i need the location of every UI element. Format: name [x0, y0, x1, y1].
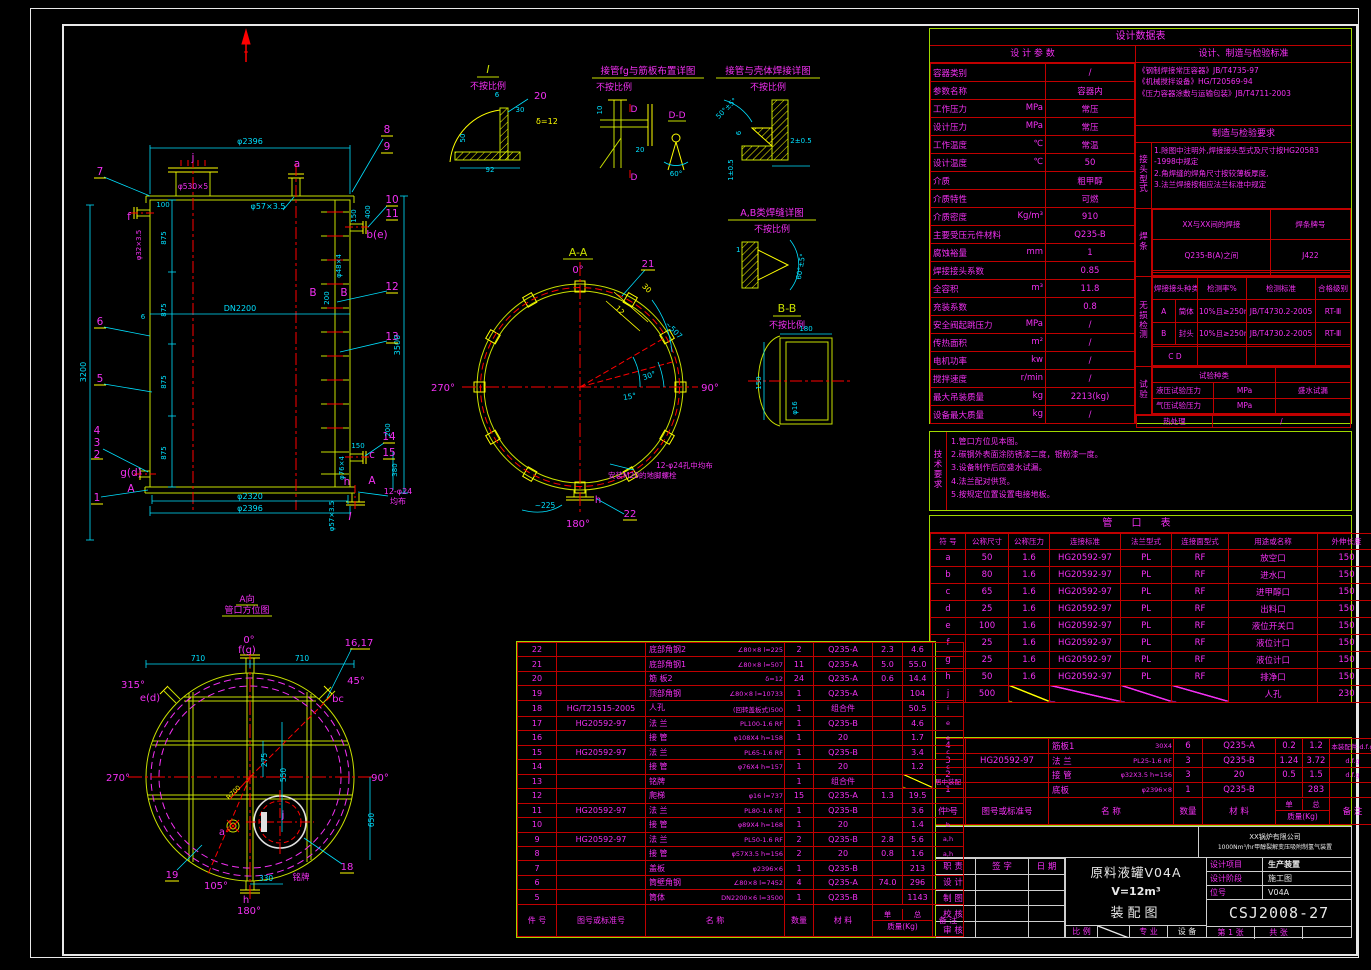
bom-unit-mass	[1276, 783, 1303, 798]
svg-text:4: 4	[94, 425, 101, 437]
svg-text:φ530×5: φ530×5	[178, 182, 209, 191]
bom-qty: 1	[785, 890, 814, 905]
bom-unit-mass	[873, 731, 903, 745]
nozzle-row: a501.6HG20592-97PLRF放空口150	[931, 549, 1371, 566]
mass-total-label: 总	[1303, 799, 1329, 810]
bom-item-no: 16	[518, 731, 557, 745]
svg-text:150: 150	[755, 376, 763, 389]
part-name: 接 管	[1052, 769, 1072, 781]
part-name: 接 管	[649, 761, 668, 772]
svg-text:22: 22	[624, 509, 637, 520]
part-name: 法 兰	[649, 805, 668, 816]
svg-text:7: 7	[97, 166, 104, 178]
scale-value	[1098, 925, 1130, 938]
param-name: 设计温度	[933, 157, 967, 169]
weld-pair: Q235-B(A)之间	[1153, 240, 1271, 270]
date-cell[interactable]	[1029, 906, 1065, 922]
param-label: 介质特性	[931, 190, 1046, 208]
part-name: 筒体	[649, 892, 665, 903]
param-label: 设计温度℃	[931, 154, 1046, 172]
bom-unit-mass: 0.5	[1276, 768, 1303, 783]
bom-item-no: 6	[518, 875, 557, 889]
part-spec: φ108X4 h=158	[734, 732, 783, 742]
param-value: 常压	[1046, 118, 1135, 136]
sign-cell[interactable]	[976, 874, 1029, 890]
part-spec: ∠80×8 l≈225	[738, 644, 783, 654]
test-type-header: 试验种类	[1153, 368, 1276, 383]
bom-name: 人孔(回转盖板式)500	[646, 700, 785, 716]
part-spec: PL25-1.6 RF	[1133, 755, 1172, 765]
mass-kg-label: 质量(Kg)	[1276, 811, 1329, 822]
nozzle-cell: 液位计口	[1229, 651, 1318, 668]
bom-std-no: HG20592-97	[557, 803, 646, 817]
param-unit: m³	[1031, 283, 1043, 295]
svg-text:h: h	[595, 495, 601, 506]
mass-unit-label: 单	[1276, 799, 1303, 810]
bom-material: 20	[814, 846, 873, 860]
bom-remark	[933, 686, 964, 700]
svg-text:12: 12	[385, 281, 398, 293]
bom-total-mass: 4.6	[903, 643, 933, 657]
nozzle-cell: 1.6	[1009, 549, 1050, 566]
nozzle-cell: RF	[1172, 583, 1229, 600]
scale-label: 比 例	[1066, 925, 1098, 938]
nozzle-cell: 150	[1318, 549, 1371, 566]
nozzle-cell: 50	[966, 668, 1009, 685]
param-label: 传热面积m²	[931, 334, 1046, 352]
sign-cell[interactable]	[976, 906, 1029, 922]
svg-text:90°: 90°	[701, 383, 719, 394]
nozzle-cell: c	[931, 583, 966, 600]
svg-text:180°: 180°	[237, 906, 261, 917]
svg-text:1±0.5: 1±0.5	[727, 159, 735, 180]
param-row: 焊接接头系数0.85	[931, 262, 1135, 280]
bom-name: 底板φ2396×8	[1049, 783, 1174, 798]
svg-text:100: 100	[156, 201, 169, 209]
bom-total-mass: 4.6	[903, 716, 933, 730]
bom-total-mass: 1.6	[903, 846, 933, 860]
nozzle-row: d251.6HG20592-97PLRF出料口150	[931, 600, 1371, 617]
test-table: 试验种类 液压试验压力 MPa 盛水试漏 气压试验压力 MPa	[1152, 367, 1351, 414]
bom-std-no	[966, 739, 1049, 754]
company-cell: XX锅炉有限公司 1000Nm³/hr甲醇裂解变压吸附制氢气装置	[1199, 827, 1351, 857]
param-label: 工作压力MPa	[931, 100, 1046, 118]
sign-header: 签 字	[976, 859, 1029, 875]
svg-text:875: 875	[160, 303, 168, 316]
nozzle-cell: 1.6	[1009, 600, 1050, 617]
param-name: 介质密度	[933, 211, 967, 223]
project-value: 生产装置	[1263, 858, 1351, 871]
bom-name: 铭牌	[646, 774, 785, 788]
svg-text:20: 20	[534, 91, 547, 102]
view-a-dims	[146, 648, 370, 884]
bom-total-mass: 19.5	[903, 789, 933, 803]
bom-material: Q235-A	[814, 657, 873, 671]
bom-unit-mass	[873, 745, 903, 759]
bom-unit-mass: 2.8	[873, 832, 903, 846]
bom-remark	[933, 875, 964, 889]
detail-i: I 不按比例 20 δ=12 6 30 92 50	[450, 63, 558, 174]
part-name: 筒壁角钢	[649, 877, 681, 888]
nozzle-header: 符 号	[931, 534, 966, 550]
ndt-head-kind: 焊接接头种类	[1153, 278, 1198, 300]
bom-total-mass: 55.0	[903, 657, 933, 671]
part-spec: PL65-1.6 RF	[744, 747, 783, 757]
drawing-sheet: 7 8 9 10 11 12 13 14 15 6 5 4 3 2 1 j a …	[0, 0, 1371, 970]
equipment-volume: V=12m³	[1111, 885, 1160, 898]
bom-material: Q235-B	[814, 716, 873, 730]
param-unit: kg	[1033, 409, 1043, 421]
svg-text:1: 1	[736, 246, 740, 254]
bom-material: Q235-B	[814, 832, 873, 846]
ndt-grade: RT-Ⅲ	[1316, 322, 1351, 344]
param-value: /	[1046, 352, 1135, 370]
bom-row: 14接 管φ76X4 h=1571201.2c	[518, 760, 964, 774]
part-name: 接 管	[649, 732, 668, 743]
project-label: 设计项目	[1207, 858, 1263, 871]
bom-row: 10接 管φ89X4 h=1681201.4b	[518, 818, 964, 832]
svg-text:2±0.5: 2±0.5	[790, 137, 811, 145]
nozzle-row: c651.6HG20592-97PLRF进甲醇口150	[931, 583, 1371, 600]
svg-text:200: 200	[323, 291, 331, 304]
svg-text:安装M20的地脚螺栓: 安装M20的地脚螺栓	[608, 470, 677, 480]
date-header: 日 期	[1029, 859, 1065, 875]
bom-name: 筋 板2δ=12	[646, 671, 785, 685]
bom-row: 1底板φ2396×81Q235-B283	[931, 783, 1371, 798]
param-row: 介质特性可燃	[931, 190, 1135, 208]
param-row: 设备最大质量kg/	[931, 406, 1135, 424]
param-value: 50	[1046, 154, 1135, 172]
date-cell[interactable]	[1029, 890, 1065, 906]
param-label: 腐蚀裕量mm	[931, 244, 1046, 262]
front-view-dimension-lines	[86, 139, 408, 540]
param-label: 工作温度℃	[931, 136, 1046, 154]
nozzle-cell: RF	[1172, 651, 1229, 668]
bom-header: 件 号	[518, 905, 557, 937]
bom-qty: 4	[785, 875, 814, 889]
nozzle-cell: PL	[1121, 634, 1172, 651]
bom-std-no	[557, 686, 646, 700]
nozzle-cell: 25	[966, 600, 1009, 617]
param-value: /	[1046, 334, 1135, 352]
major-label: 专 业	[1130, 925, 1168, 938]
bom-header-row: 件 号图号或标准号名 称数量材 料单总质量(Kg)备 注	[931, 797, 1371, 824]
bom-std-no: HG/T21515-2005	[557, 700, 646, 716]
svg-text:275: 275	[260, 753, 269, 768]
svg-text:铭牌: 铭牌	[292, 872, 310, 883]
bom-material: 20	[1203, 768, 1276, 783]
svg-text:b(e): b(e)	[366, 229, 387, 241]
bom-qty: 1	[785, 731, 814, 745]
bom-item-no: 22	[518, 643, 557, 657]
ndt-shell: 筒体	[1175, 300, 1198, 322]
svg-text:A向: A向	[239, 593, 254, 605]
svg-text:不按比例: 不按比例	[596, 81, 632, 93]
bom-item-no: 21	[518, 657, 557, 671]
bom-name: 接 管φ76X4 h=157	[646, 760, 785, 774]
sign-cell[interactable]	[976, 922, 1029, 938]
sheet-total: 共 张	[1255, 926, 1303, 939]
bom-qty: 2	[785, 846, 814, 860]
bom-name: 法 兰PL80-1.6 RF	[646, 803, 785, 817]
param-value: 可燃	[1046, 190, 1135, 208]
param-row: 介质密度Kg/m³910	[931, 208, 1135, 226]
svg-text:150: 150	[351, 442, 364, 450]
bom-qty: 1	[785, 700, 814, 716]
svg-text:710: 710	[191, 654, 206, 663]
bom-qty: 24	[785, 671, 814, 685]
technical-notes: 技 术 要 求 1.管口方位见本图。2.碳钢外表面涂防锈漆二度，银粉漆一度。3.…	[929, 431, 1352, 511]
part-name: 法 兰	[649, 718, 668, 729]
front-view-callouts: 7 8 9 10 11 12 13 14 15 6 5 4 3 2 1 j a …	[94, 124, 413, 523]
svg-text:接管fg与筋板布置详图: 接管fg与筋板布置详图	[601, 65, 696, 77]
svg-text:12-φ24孔中均布: 12-φ24孔中均布	[656, 460, 713, 470]
bom-total-mass: 296	[903, 875, 933, 889]
require-header: 制造与检验要求	[1136, 126, 1351, 143]
joint-note-item: 1.除图中注明外,焊接接头型式及尺寸按HG20583	[1154, 145, 1349, 156]
nozzle-cell: 1.6	[1009, 583, 1050, 600]
bom-std-no: HG20592-97	[557, 745, 646, 759]
param-value: 容器内	[1046, 82, 1135, 100]
bom-header: 名 称	[1049, 797, 1174, 824]
section-aa-aux	[606, 292, 672, 352]
bom-header-mass: 单总质量(Kg)	[1276, 797, 1330, 824]
bom-std-no: HG20592-97	[557, 716, 646, 730]
svg-text:φ57×3.5: φ57×3.5	[328, 501, 336, 532]
nozzle-cell: 人孔	[1229, 685, 1318, 702]
tag-label: 位号	[1207, 886, 1263, 899]
bom-row: 4筋板130X46Q235-A0.21.2本装配件 d.f.g	[931, 739, 1371, 754]
nozzle-table-title: 管 口 表	[930, 516, 1351, 533]
bom-remark: d.f.g	[1330, 768, 1371, 783]
tag-value: V04A	[1263, 886, 1351, 899]
param-name: 介质	[933, 175, 950, 187]
nozzle-cell: 500	[966, 685, 1009, 702]
date-cell[interactable]	[1029, 874, 1065, 890]
param-label: 设计压力MPa	[931, 118, 1046, 136]
nozzle-cell: HG20592-97	[1050, 634, 1121, 651]
nozzle-cell: 150	[1318, 651, 1371, 668]
param-unit: r/min	[1021, 373, 1043, 385]
nozzle-cell: RF	[1172, 600, 1229, 617]
nozzle-cell: 出料口	[1229, 600, 1318, 617]
param-label: 全容积m³	[931, 280, 1046, 298]
nozzle-row: f251.6HG20592-97PLRF液位计口150	[931, 634, 1371, 651]
standard-item: 《机械搅拌设备》HG/T20569-94	[1138, 76, 1349, 87]
standards-list: 《钢制焊接常压容器》JB/T4735-97《机械搅拌设备》HG/T20569-9…	[1136, 63, 1351, 126]
param-value: 0.8	[1046, 298, 1135, 316]
heat-treatment-row: 热处理/	[1136, 415, 1351, 428]
param-name: 搅拌速度	[933, 373, 967, 385]
svg-text:10: 10	[385, 194, 398, 206]
bom-unit-mass: 1.24	[1276, 753, 1303, 768]
svg-text:11: 11	[385, 208, 398, 220]
svg-text:均布: 均布	[390, 496, 406, 506]
bom-qty: 3	[1174, 753, 1203, 768]
param-row: 电机功率kw/	[931, 352, 1135, 370]
bom-remark	[933, 671, 964, 685]
nozzle-cell: e	[931, 617, 966, 634]
svg-text:接管与壳体焊接详图: 接管与壳体焊接详图	[725, 65, 811, 77]
svg-text:3: 3	[94, 437, 101, 449]
svg-text:不按比例: 不按比例	[754, 223, 790, 235]
bom-item-no: 20	[518, 671, 557, 685]
svg-text:不按比例: 不按比例	[750, 81, 786, 93]
welding-rod-label: 焊 条	[1136, 209, 1152, 276]
param-name: 安全阀起跳压力	[933, 319, 993, 331]
param-row: 最大吊装质量kg2213(kg)	[931, 388, 1135, 406]
svg-text:650: 650	[367, 813, 376, 828]
mass-kg-label: 质量(Kg)	[873, 921, 932, 932]
nozzle-cell: 1.6	[1009, 634, 1050, 651]
ndt-std: JB/T4730.2-2005	[1247, 300, 1316, 322]
bom-std-no	[966, 768, 1049, 783]
param-row: 设计压力MPa常压	[931, 118, 1135, 136]
detail-fg: 接管fg与筋板布置详图 不按比例 D D D-D	[592, 65, 704, 183]
param-row: 主要受压元件材料Q235-B	[931, 226, 1135, 244]
bom-remark: e	[933, 731, 964, 745]
bom-unit-mass	[873, 818, 903, 832]
joint-note-item: 3.法兰焊接按相应法兰标准中规定	[1154, 179, 1349, 190]
bom-std-no	[557, 846, 646, 860]
bom-qty: 1	[785, 774, 814, 788]
bom-total-mass: 1.2	[903, 760, 933, 774]
bom-remark	[933, 657, 964, 671]
svg-text:6: 6	[735, 130, 743, 135]
bom-remark	[933, 789, 964, 803]
bom-unit-mass: 5.0	[873, 657, 903, 671]
mass-unit-label: 单	[873, 909, 903, 920]
view-a-underlines	[165, 605, 370, 881]
bom-row: 5筒体DN2200×6 l=35001Q235-B1143	[518, 890, 964, 905]
part-name: 底部角钢2	[649, 644, 686, 655]
mass-total-label: 总	[903, 909, 932, 920]
weld-rod-no: J422	[1270, 240, 1350, 270]
sign-cell[interactable]	[976, 890, 1029, 906]
north-arrow-icon	[242, 30, 250, 62]
svg-text:B: B	[309, 287, 316, 299]
bom-header-mass: 单总质量(Kg)	[873, 905, 933, 937]
bom-std-no: HG20592-97	[557, 832, 646, 846]
nozzle-cell	[1050, 685, 1121, 702]
svg-text:18: 18	[341, 862, 354, 873]
param-value: 粗甲醇	[1046, 172, 1135, 190]
svg-text:30: 30	[640, 282, 653, 295]
bom-row: 2接 管φ32X3.5 h=1563200.51.5d.f.g	[931, 768, 1371, 783]
nozzle-row: j500人孔230	[931, 685, 1371, 702]
bom-qty: 1	[785, 818, 814, 832]
bom-std-no	[557, 657, 646, 671]
nozzle-cell: PL	[1121, 583, 1172, 600]
drawing-title-cell: 原料液罐V04A V=12m³ 装配图 比 例 专 业 设 备	[1066, 858, 1207, 938]
sheet-number: 第 1 张	[1207, 926, 1255, 939]
svg-text:180: 180	[799, 325, 812, 333]
bom-main-table: 22底部角钢2∠80×8 l≈2252Q235-A2.34.621底部角钢1∠8…	[516, 641, 936, 938]
bom-name: 盖板φ2396×6	[646, 861, 785, 875]
part-spec: φ32X3.5 h=156	[1121, 769, 1172, 779]
svg-text:150: 150	[350, 209, 358, 222]
svg-text:I: I	[348, 511, 351, 523]
part-spec: φ76X4 h=157	[738, 761, 783, 771]
nozzle-header: 用途或名称	[1229, 534, 1318, 550]
param-label: 参数名称	[931, 82, 1046, 100]
svg-text:21: 21	[642, 259, 655, 270]
ndt-grade: RT-Ⅲ	[1316, 300, 1351, 322]
design-data-table: 设计数据表 设 计 参 数 容器类别/参数名称容器内工作压力MPa常压设计压力M…	[929, 28, 1352, 424]
tech-note-item: 3.设备制作后应盛水试漏。	[951, 461, 1347, 474]
ndt-rate: 10%且≥250mm	[1198, 322, 1247, 344]
part-spec: φ57X3.5 h=156	[732, 848, 783, 858]
bom-header: 数量	[1174, 797, 1203, 824]
param-name: 工作温度	[933, 139, 967, 151]
bom-header: 备 注	[1330, 797, 1371, 824]
param-name: 设计压力	[933, 121, 967, 133]
bom-qty: 2	[785, 643, 814, 657]
bom-std-no	[557, 731, 646, 745]
pneu-test-value	[1275, 398, 1350, 413]
svg-text:270°: 270°	[431, 383, 455, 394]
bom-name: 底部角钢2∠80×8 l≈225	[646, 643, 785, 657]
svg-text:20: 20	[636, 146, 645, 154]
bom-material: Q235-B	[814, 745, 873, 759]
ndt-table: 焊接接头种类 检测率% 检测标准 合格级别 A 筒体 10%且≥250mm JB…	[1152, 277, 1351, 366]
ndt-head-std: 检测标准	[1247, 278, 1316, 300]
svg-text:g(d): g(d)	[120, 467, 142, 479]
svg-text:φ2396: φ2396	[237, 137, 263, 146]
nozzle-cell: 放空口	[1229, 549, 1318, 566]
param-name: 参数名称	[933, 85, 967, 97]
tech-note-item: 2.碳钢外表面涂防锈漆二度，银粉漆一度。	[951, 448, 1347, 461]
param-value: 2213(kg)	[1046, 388, 1135, 406]
part-name: 法 兰	[649, 834, 668, 845]
nozzle-cell: 1.6	[1009, 617, 1050, 634]
param-label: 最大吊装质量kg	[931, 388, 1046, 406]
nozzle-row: e1001.6HG20592-97PLRF液位开关口150	[931, 617, 1371, 634]
param-row: 工作压力MPa常压	[931, 100, 1135, 118]
hydro-test-unit: MPa	[1214, 383, 1275, 398]
date-cell[interactable]	[1029, 922, 1065, 938]
param-name: 主要受压元件材料	[933, 229, 1001, 241]
param-unit: ℃	[1033, 139, 1043, 151]
bom-material: Q235-A	[814, 789, 873, 803]
ndt-rate: 10%且≥250mm	[1198, 300, 1247, 322]
param-name: 容器类别	[933, 67, 967, 79]
bom-std-no	[557, 789, 646, 803]
front-view-geometry	[134, 168, 366, 505]
svg-text:3500: 3500	[393, 335, 402, 355]
nozzle-cell: 1.6	[1009, 566, 1050, 583]
section-aa-title-underline	[563, 259, 655, 520]
bom-qty: 15	[785, 789, 814, 803]
nozzle-cell: HG20592-97	[1050, 583, 1121, 600]
standard-item: 《钢制焊接常压容器》JB/T4735-97	[1138, 65, 1349, 76]
param-name: 充装系数	[933, 301, 967, 313]
bom-unit-mass: 0.2	[1276, 739, 1303, 754]
bom-total-mass: 1.5	[1303, 768, 1330, 783]
hydro-test-label: 液压试验压力	[1153, 383, 1214, 398]
bom-name: 接 管φ108X4 h=158	[646, 731, 785, 745]
bom-material: Q235-A	[814, 643, 873, 657]
part-name: 铭牌	[649, 776, 665, 787]
nozzle-header: 外伸长度	[1318, 534, 1371, 550]
detail-shell-weld: 接管与壳体焊接详图 不按比例 50°±5° 6 2±0.5 1±0.5	[714, 65, 820, 181]
bom-unit-mass	[873, 861, 903, 875]
svg-text:φ48×4: φ48×4	[335, 254, 343, 278]
ndt-std: JB/T4730.2-2005	[1247, 322, 1316, 344]
svg-text:f(g): f(g)	[238, 645, 256, 656]
bom-remark	[933, 643, 964, 657]
svg-text:bc: bc	[332, 694, 344, 705]
